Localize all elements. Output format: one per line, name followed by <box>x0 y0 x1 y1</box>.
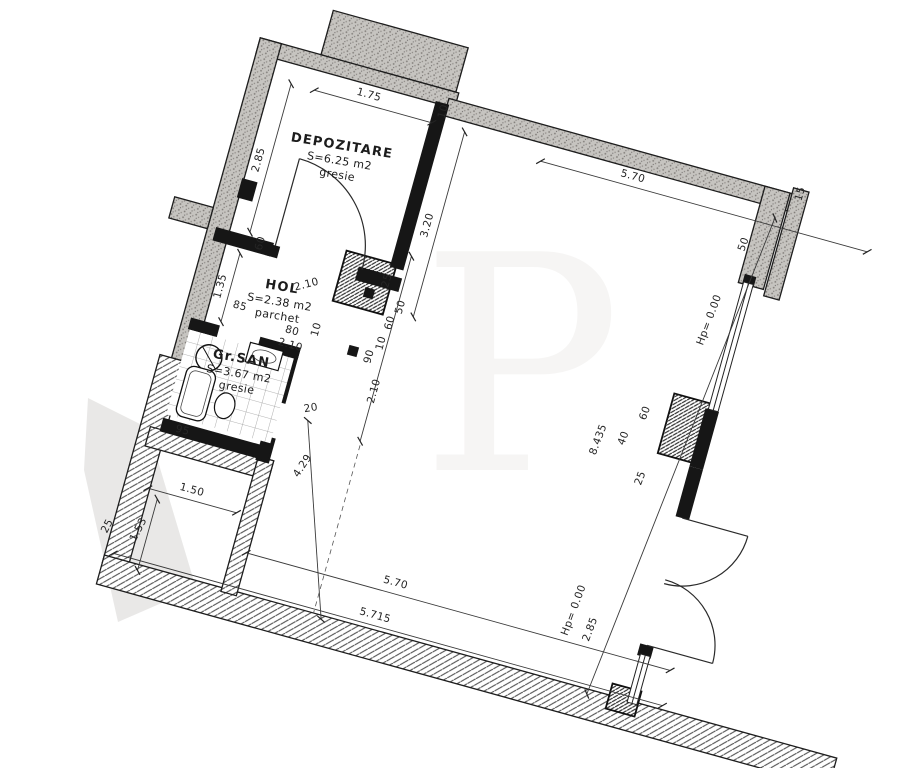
floor-plan-page: P <box>0 0 899 768</box>
floor-plan-canvas: P <box>0 0 899 768</box>
watermark-letter: P <box>420 192 622 541</box>
dim-label: 20 <box>303 401 319 415</box>
